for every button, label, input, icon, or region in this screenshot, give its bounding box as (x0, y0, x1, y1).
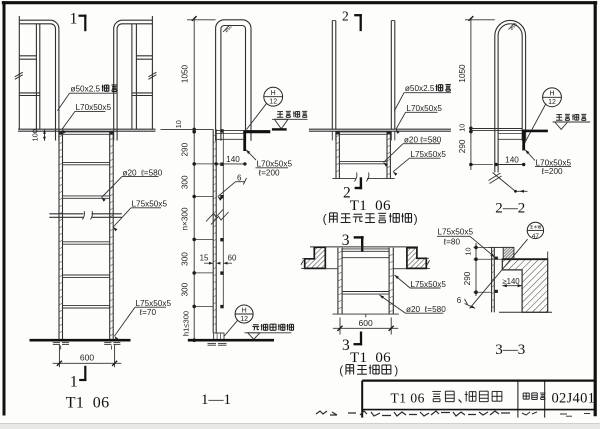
svg-text:60: 60 (228, 254, 237, 263)
svg-text:3: 3 (342, 337, 350, 354)
svg-text:T1 06: T1 06 (391, 390, 425, 405)
svg-text:≥140: ≥140 (502, 277, 520, 286)
svg-text:3—3: 3—3 (495, 342, 525, 358)
svg-text:ø20 ℓ=580: ø20 ℓ=580 (404, 135, 442, 144)
svg-text:ℓ=70: ℓ=70 (139, 308, 157, 317)
svg-text:L75x50x5: L75x50x5 (438, 228, 474, 237)
svg-text:290: 290 (463, 271, 472, 285)
svg-text:1050: 1050 (458, 64, 467, 83)
svg-text:10: 10 (458, 124, 467, 132)
svg-text:L70x50x5: L70x50x5 (257, 160, 293, 169)
svg-text:ø50x2.5: ø50x2.5 (405, 84, 435, 93)
svg-text:ø20 ℓ=580: ø20 ℓ=580 (406, 305, 446, 314)
svg-text:2: 2 (342, 8, 349, 23)
svg-text:ℓ=200: ℓ=200 (258, 168, 281, 177)
svg-text:ℓ=200: ℓ=200 (541, 167, 564, 176)
svg-text:): ) (414, 211, 418, 225)
svg-text:L75x50x5: L75x50x5 (136, 299, 172, 308)
svg-text:L75x50x5: L75x50x5 (410, 280, 446, 289)
svg-text:h1≤300: h1≤300 (182, 311, 191, 336)
svg-text:L70x50x5: L70x50x5 (76, 103, 112, 112)
svg-text:3: 3 (342, 232, 350, 249)
svg-text:L75x50x5: L75x50x5 (410, 150, 446, 159)
svg-text:T1 06: T1 06 (66, 394, 110, 411)
svg-text:12: 12 (548, 99, 556, 106)
svg-text:L70x50x5: L70x50x5 (536, 158, 572, 167)
svg-text:12: 12 (240, 316, 248, 323)
svg-text:12: 12 (269, 99, 277, 106)
svg-text:10: 10 (463, 248, 472, 256)
svg-text:300: 300 (181, 175, 190, 189)
svg-text:H: H (549, 91, 554, 98)
svg-text:2—2: 2—2 (495, 201, 525, 217)
svg-text:H: H (242, 307, 247, 314)
svg-text:H: H (271, 90, 276, 97)
svg-text:15: 15 (200, 254, 209, 263)
svg-text:02J401: 02J401 (552, 391, 596, 407)
svg-text:ℓ=80: ℓ=80 (443, 237, 461, 246)
svg-text:1: 1 (70, 374, 78, 391)
svg-text:ø50x2.5: ø50x2.5 (71, 85, 101, 94)
svg-text:47: 47 (532, 233, 540, 240)
svg-text:140: 140 (505, 155, 519, 164)
svg-text:T1 06: T1 06 (350, 198, 391, 214)
svg-text:300: 300 (181, 252, 190, 266)
svg-text:ø20 ℓ=580: ø20 ℓ=580 (123, 168, 163, 177)
svg-text:T1 06: T1 06 (350, 350, 391, 366)
svg-text:n×300: n×300 (181, 207, 190, 230)
svg-text:290: 290 (458, 139, 467, 153)
svg-text:1050: 1050 (181, 64, 190, 83)
svg-text:300: 300 (181, 282, 190, 296)
svg-text:(: ( (339, 363, 343, 377)
svg-text:L70x50x5: L70x50x5 (406, 104, 442, 113)
svg-text:290: 290 (181, 142, 190, 156)
svg-text:6: 6 (457, 296, 462, 305)
svg-text:(: ( (323, 211, 327, 225)
svg-text:L75x50x5: L75x50x5 (132, 200, 168, 209)
svg-text:100: 100 (31, 129, 40, 142)
svg-text:600: 600 (359, 318, 373, 328)
svg-text:1: 1 (70, 11, 78, 28)
svg-text:1—1: 1—1 (201, 392, 231, 408)
svg-text:600: 600 (80, 353, 94, 363)
svg-text:6: 6 (237, 173, 242, 182)
svg-text:): ) (394, 363, 398, 377)
svg-text:10: 10 (174, 120, 183, 128)
svg-text:140: 140 (226, 155, 240, 164)
